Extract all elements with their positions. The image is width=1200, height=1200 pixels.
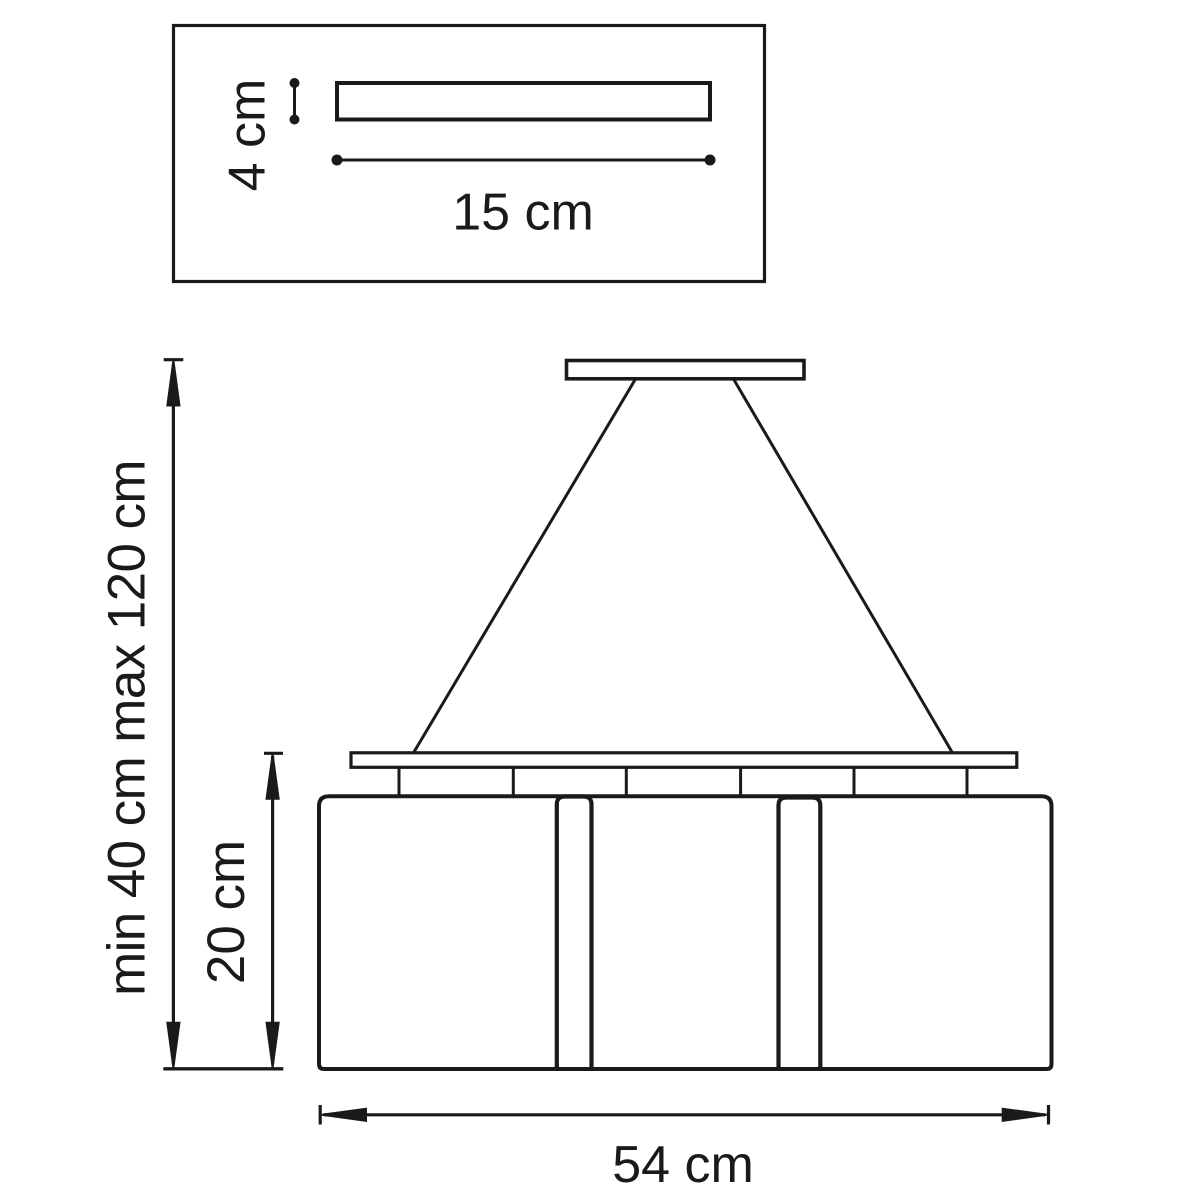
svg-text:4 cm: 4 cm <box>219 79 277 192</box>
svg-text:20 cm: 20 cm <box>197 840 256 984</box>
svg-text:15 cm: 15 cm <box>452 184 594 242</box>
svg-text:min 40 cm max 120 cm: min 40 cm max 120 cm <box>98 460 157 996</box>
svg-text:54 cm: 54 cm <box>612 1136 754 1194</box>
